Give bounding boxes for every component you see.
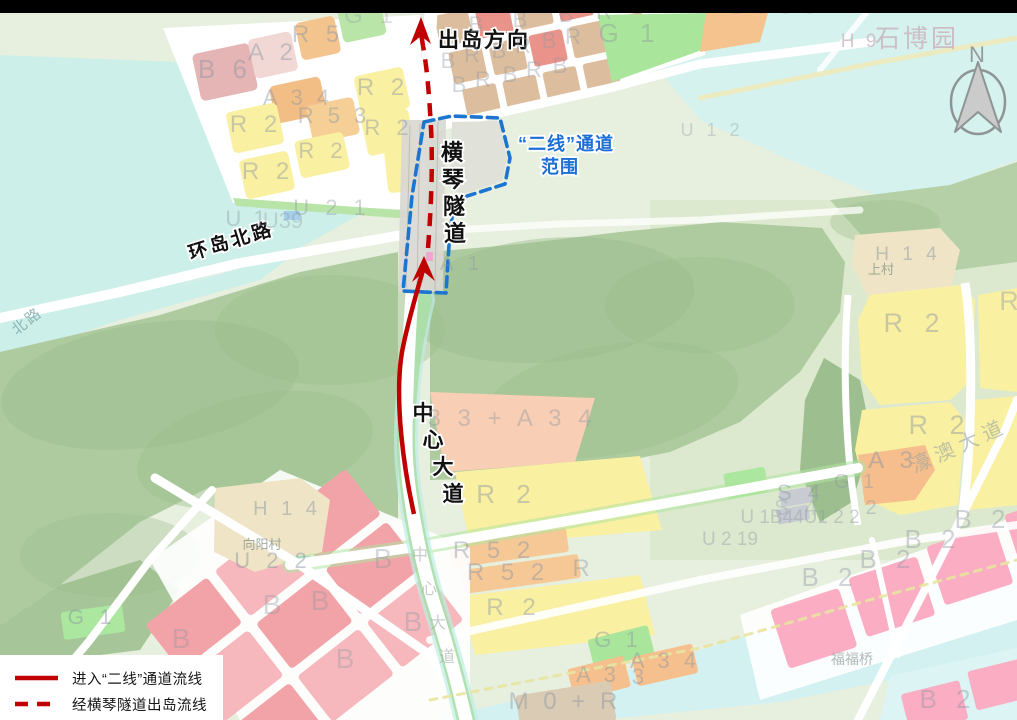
zone-code-label: R 5 2 — [467, 559, 549, 586]
zone-code-label: B — [172, 623, 191, 654]
zone-code-label: M 0 + R — [509, 688, 622, 715]
zone-code-label: G 1 — [594, 627, 641, 652]
zone-code-label: B — [469, 12, 484, 37]
zone-code-label: U 2 19 — [702, 529, 758, 550]
zone-code-label: R 2 — [242, 158, 294, 185]
zone-code-label: R — [526, 57, 542, 82]
zone-code-label: B — [553, 53, 568, 78]
zone-code-label: B — [503, 62, 518, 87]
zone-code-label: U 1 2 — [680, 120, 743, 140]
zone-code-label: B — [542, 28, 557, 53]
zone-code-label: G 1 — [68, 606, 117, 629]
zone-code-label: U 1B44U1 2 2 — [740, 507, 859, 528]
zone-code-label: U 2 1 — [293, 195, 371, 220]
zone-code-label: U 2 2 — [234, 548, 312, 573]
zone-code-label: A 2 — [248, 39, 298, 66]
zone-code-label: R 2 — [476, 479, 537, 509]
zone-code-label: 3 3 + A 3 4 — [427, 405, 596, 432]
zone-code-label: R 2 — [357, 74, 409, 101]
zone-code-label: 上村 — [868, 262, 894, 277]
zone-code-label: A 3 — [576, 662, 620, 687]
zone-code-label: 福福桥 — [831, 651, 873, 667]
zone-code-label: R 2 — [883, 308, 946, 338]
zone-code-label: B — [441, 48, 456, 73]
zone-code-label: H 1 4 — [253, 498, 321, 520]
zone-code-label: R 2 — [364, 115, 413, 140]
zone-code-label: B 6 — [198, 54, 252, 84]
zone-code-label: B — [374, 543, 393, 574]
zone-code-label: R — [999, 286, 1017, 316]
zone-code-label: B 2 — [801, 562, 858, 592]
zone-code-label: H 9 — [841, 31, 880, 52]
legend-label-exit: 经横琴隧道出岛流线 — [72, 697, 207, 714]
legend: 进入“二线”通道流线 经横琴隧道出岛流线 — [0, 655, 223, 720]
zone-code-label: B 2 — [859, 544, 916, 574]
zone-code-label: R 2 — [298, 138, 347, 163]
zone-code-label: G 1 — [599, 18, 662, 48]
zone-code-label: A 1 — [440, 253, 484, 275]
legend-label-enter: 进入“二线”通道流线 — [72, 671, 203, 688]
zone-code-label: B 2 — [919, 684, 976, 714]
zone-code-label: R — [565, 24, 581, 49]
zone-code-label: B — [336, 643, 355, 674]
zone-code-label: B — [311, 585, 330, 616]
zone-code-label: R — [515, 33, 531, 58]
zone-code-label: B 2 — [954, 504, 1011, 534]
zone-code-label: B — [263, 589, 282, 620]
zone-code-label: B — [404, 606, 423, 637]
zone-code-label: B — [492, 38, 507, 63]
planning-map: 出岛方向横琴隧道中心大道环岛北路“二线”通道范围NB 6A 2R 5A 3 4R… — [0, 0, 1017, 720]
zone-code-label: G 1 — [834, 471, 878, 493]
zone-code-label: R 2 — [486, 594, 541, 621]
zone-code-label: R — [475, 67, 491, 92]
map-canvas: 出岛方向横琴隧道中心大道环岛北路“二线”通道范围NB 6A 2R 5A 3 4R… — [0, 0, 1017, 720]
zone-code-label: R 2 — [230, 111, 282, 138]
tunnel-portal-marker — [426, 252, 433, 261]
channel-scope-label-2: 范围 — [541, 156, 579, 177]
zone-code-label: 2 — [865, 497, 876, 519]
zone-code-label: R 5 3 — [298, 103, 371, 128]
zone-code-label: 石博园 — [875, 25, 959, 53]
zone-code-label: R — [464, 42, 480, 67]
top-black-bar — [0, 0, 1017, 13]
zone-code-label: R — [572, 555, 589, 582]
north-label: N — [969, 42, 985, 67]
zone-code-label: R 5 — [292, 21, 344, 48]
channel-scope-label-1: “二线”通道 — [518, 133, 614, 154]
zone-code-label: B — [452, 72, 467, 97]
